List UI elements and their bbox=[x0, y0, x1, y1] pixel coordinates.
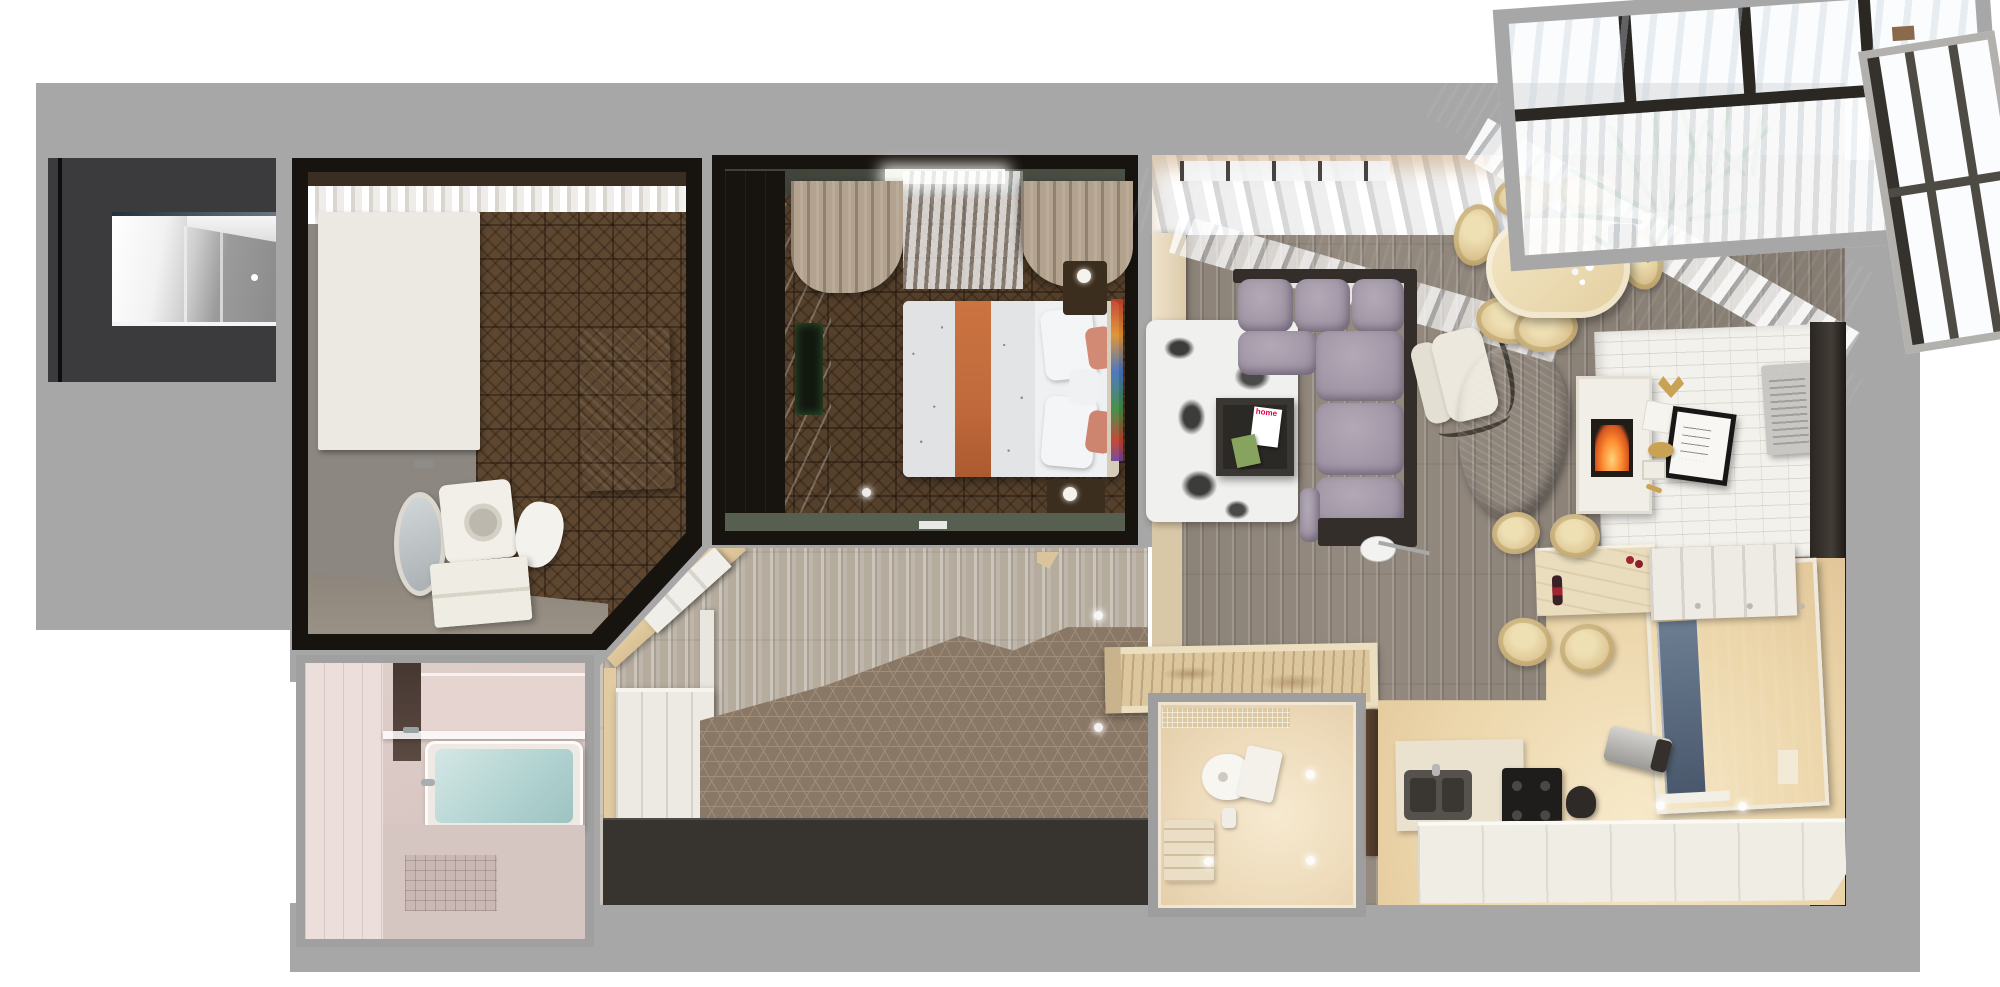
sofa-back-cushion bbox=[1238, 279, 1293, 332]
fire-flames bbox=[1595, 425, 1629, 471]
beige-patch-below-console bbox=[1152, 513, 1182, 661]
bath-water bbox=[435, 749, 573, 823]
bed-runner-orange bbox=[955, 301, 991, 477]
sofa-back-cushion bbox=[1352, 279, 1404, 332]
wc-mosaic-band bbox=[1162, 708, 1290, 728]
spotlight-dot bbox=[1094, 723, 1103, 732]
washer-door-icon bbox=[462, 502, 504, 544]
pillow-small-mid bbox=[1068, 368, 1100, 406]
cherries-icon bbox=[1626, 556, 1634, 564]
tv-screen bbox=[795, 323, 823, 415]
ac-unit bbox=[1761, 362, 1817, 455]
firebox bbox=[1591, 419, 1633, 477]
towel-blue bbox=[577, 326, 675, 491]
nightstand-top bbox=[1063, 261, 1107, 315]
tub-faucet-icon bbox=[421, 779, 435, 786]
corridor-wall-corner bbox=[220, 232, 223, 326]
fireplace-console bbox=[1576, 376, 1652, 514]
bar-counter bbox=[1535, 544, 1657, 616]
balcony-wood-sill bbox=[1892, 26, 1915, 42]
spotlight-dot bbox=[1656, 801, 1665, 810]
faucet-icon bbox=[414, 460, 434, 468]
sofa-back-cushion bbox=[1295, 279, 1350, 332]
sofa-arm bbox=[1300, 488, 1320, 542]
floor-drain-mat bbox=[405, 855, 497, 911]
wc-interior bbox=[1158, 702, 1356, 908]
duvet-floral-mid bbox=[991, 301, 1035, 477]
wc-towel-ladder bbox=[1164, 820, 1214, 882]
spotlight-dot bbox=[862, 488, 871, 497]
duvet-floral-left bbox=[903, 301, 955, 477]
corridor-ceiling-wedge bbox=[187, 216, 276, 242]
wc-flush-button-icon bbox=[1218, 772, 1228, 782]
magazine-title: home bbox=[1253, 406, 1282, 418]
bathroom-vanity bbox=[429, 556, 532, 628]
entry-door-mat bbox=[603, 818, 1148, 905]
corridor-door-panel bbox=[184, 226, 187, 322]
coffee-table: home bbox=[1216, 398, 1294, 476]
lamp-icon bbox=[1077, 269, 1091, 283]
lamp-icon bbox=[1063, 487, 1077, 501]
apartment-floorplan-render: home bbox=[0, 0, 2000, 987]
sofa-seat-mid bbox=[1316, 403, 1404, 475]
shower-left-tiles bbox=[305, 663, 383, 939]
spotlight-dot bbox=[1306, 770, 1315, 779]
shower-floor bbox=[383, 825, 585, 939]
bathtub bbox=[425, 741, 583, 833]
bathroom-window bbox=[318, 212, 480, 450]
living-window-slits bbox=[1180, 161, 1390, 181]
partition-bracket-icon bbox=[403, 727, 419, 733]
bedroom-wardrobe bbox=[725, 171, 785, 531]
hallway-floor bbox=[600, 548, 1148, 905]
spotlight-dot bbox=[1306, 856, 1315, 865]
shower-room-interior bbox=[305, 663, 585, 939]
shower-door-gap bbox=[393, 663, 421, 761]
island-left-cap bbox=[1104, 647, 1121, 713]
entry-corridor-view bbox=[112, 212, 276, 326]
corridor-floor-line bbox=[112, 322, 276, 326]
poster-frame bbox=[1663, 406, 1736, 486]
hex-tile-floor bbox=[700, 560, 1148, 852]
spotlight-dot bbox=[1094, 611, 1103, 620]
bed bbox=[903, 301, 1119, 477]
small-frame bbox=[1642, 460, 1666, 480]
poster-scribbles bbox=[1679, 423, 1712, 463]
entry-hall-shadow-edge bbox=[58, 158, 62, 382]
curtain-drape-left bbox=[791, 181, 903, 293]
sofa-corner-seat bbox=[1316, 331, 1404, 401]
curtain-sheer-center bbox=[903, 171, 1023, 289]
hall-wardrobe-paneled bbox=[616, 688, 714, 820]
kitchen-base-cabinets bbox=[1418, 818, 1847, 904]
spotlight-dot bbox=[1738, 802, 1747, 811]
bedroom-door-leaf bbox=[919, 521, 947, 529]
spotlight-dot bbox=[1204, 857, 1213, 866]
tub-apron bbox=[421, 673, 585, 731]
side-window-mullion bbox=[1888, 170, 2000, 198]
side-window-mullion bbox=[1948, 44, 2000, 332]
wall-art-strip bbox=[1111, 299, 1123, 461]
wc-toilet-tank bbox=[1237, 745, 1283, 803]
kettle bbox=[1566, 786, 1596, 818]
wine-label bbox=[1552, 587, 1562, 595]
sofa-right-rail bbox=[1404, 269, 1417, 547]
wine-bottle bbox=[1552, 575, 1563, 605]
sofa-seat-left bbox=[1238, 331, 1318, 375]
wall-niche-white bbox=[1778, 750, 1798, 784]
cubby-shelf-unit bbox=[1649, 543, 1797, 620]
window-glass bbox=[327, 221, 471, 441]
sink-faucet-icon bbox=[1432, 764, 1440, 776]
wc-bin bbox=[1222, 808, 1236, 828]
kitchen-sink bbox=[1404, 770, 1472, 820]
gold-bowl bbox=[1648, 442, 1674, 458]
sink-bowl bbox=[1442, 778, 1464, 812]
ac-grille bbox=[1769, 373, 1810, 445]
sink-bowl bbox=[1410, 778, 1436, 812]
shelf-knob-icon bbox=[1695, 603, 1701, 609]
corridor-ceiling-line bbox=[112, 212, 276, 216]
door-knob-dot bbox=[251, 274, 258, 281]
washing-machine bbox=[438, 478, 518, 563]
bedroom-interior bbox=[725, 169, 1125, 531]
bathroom-interior bbox=[308, 172, 686, 634]
